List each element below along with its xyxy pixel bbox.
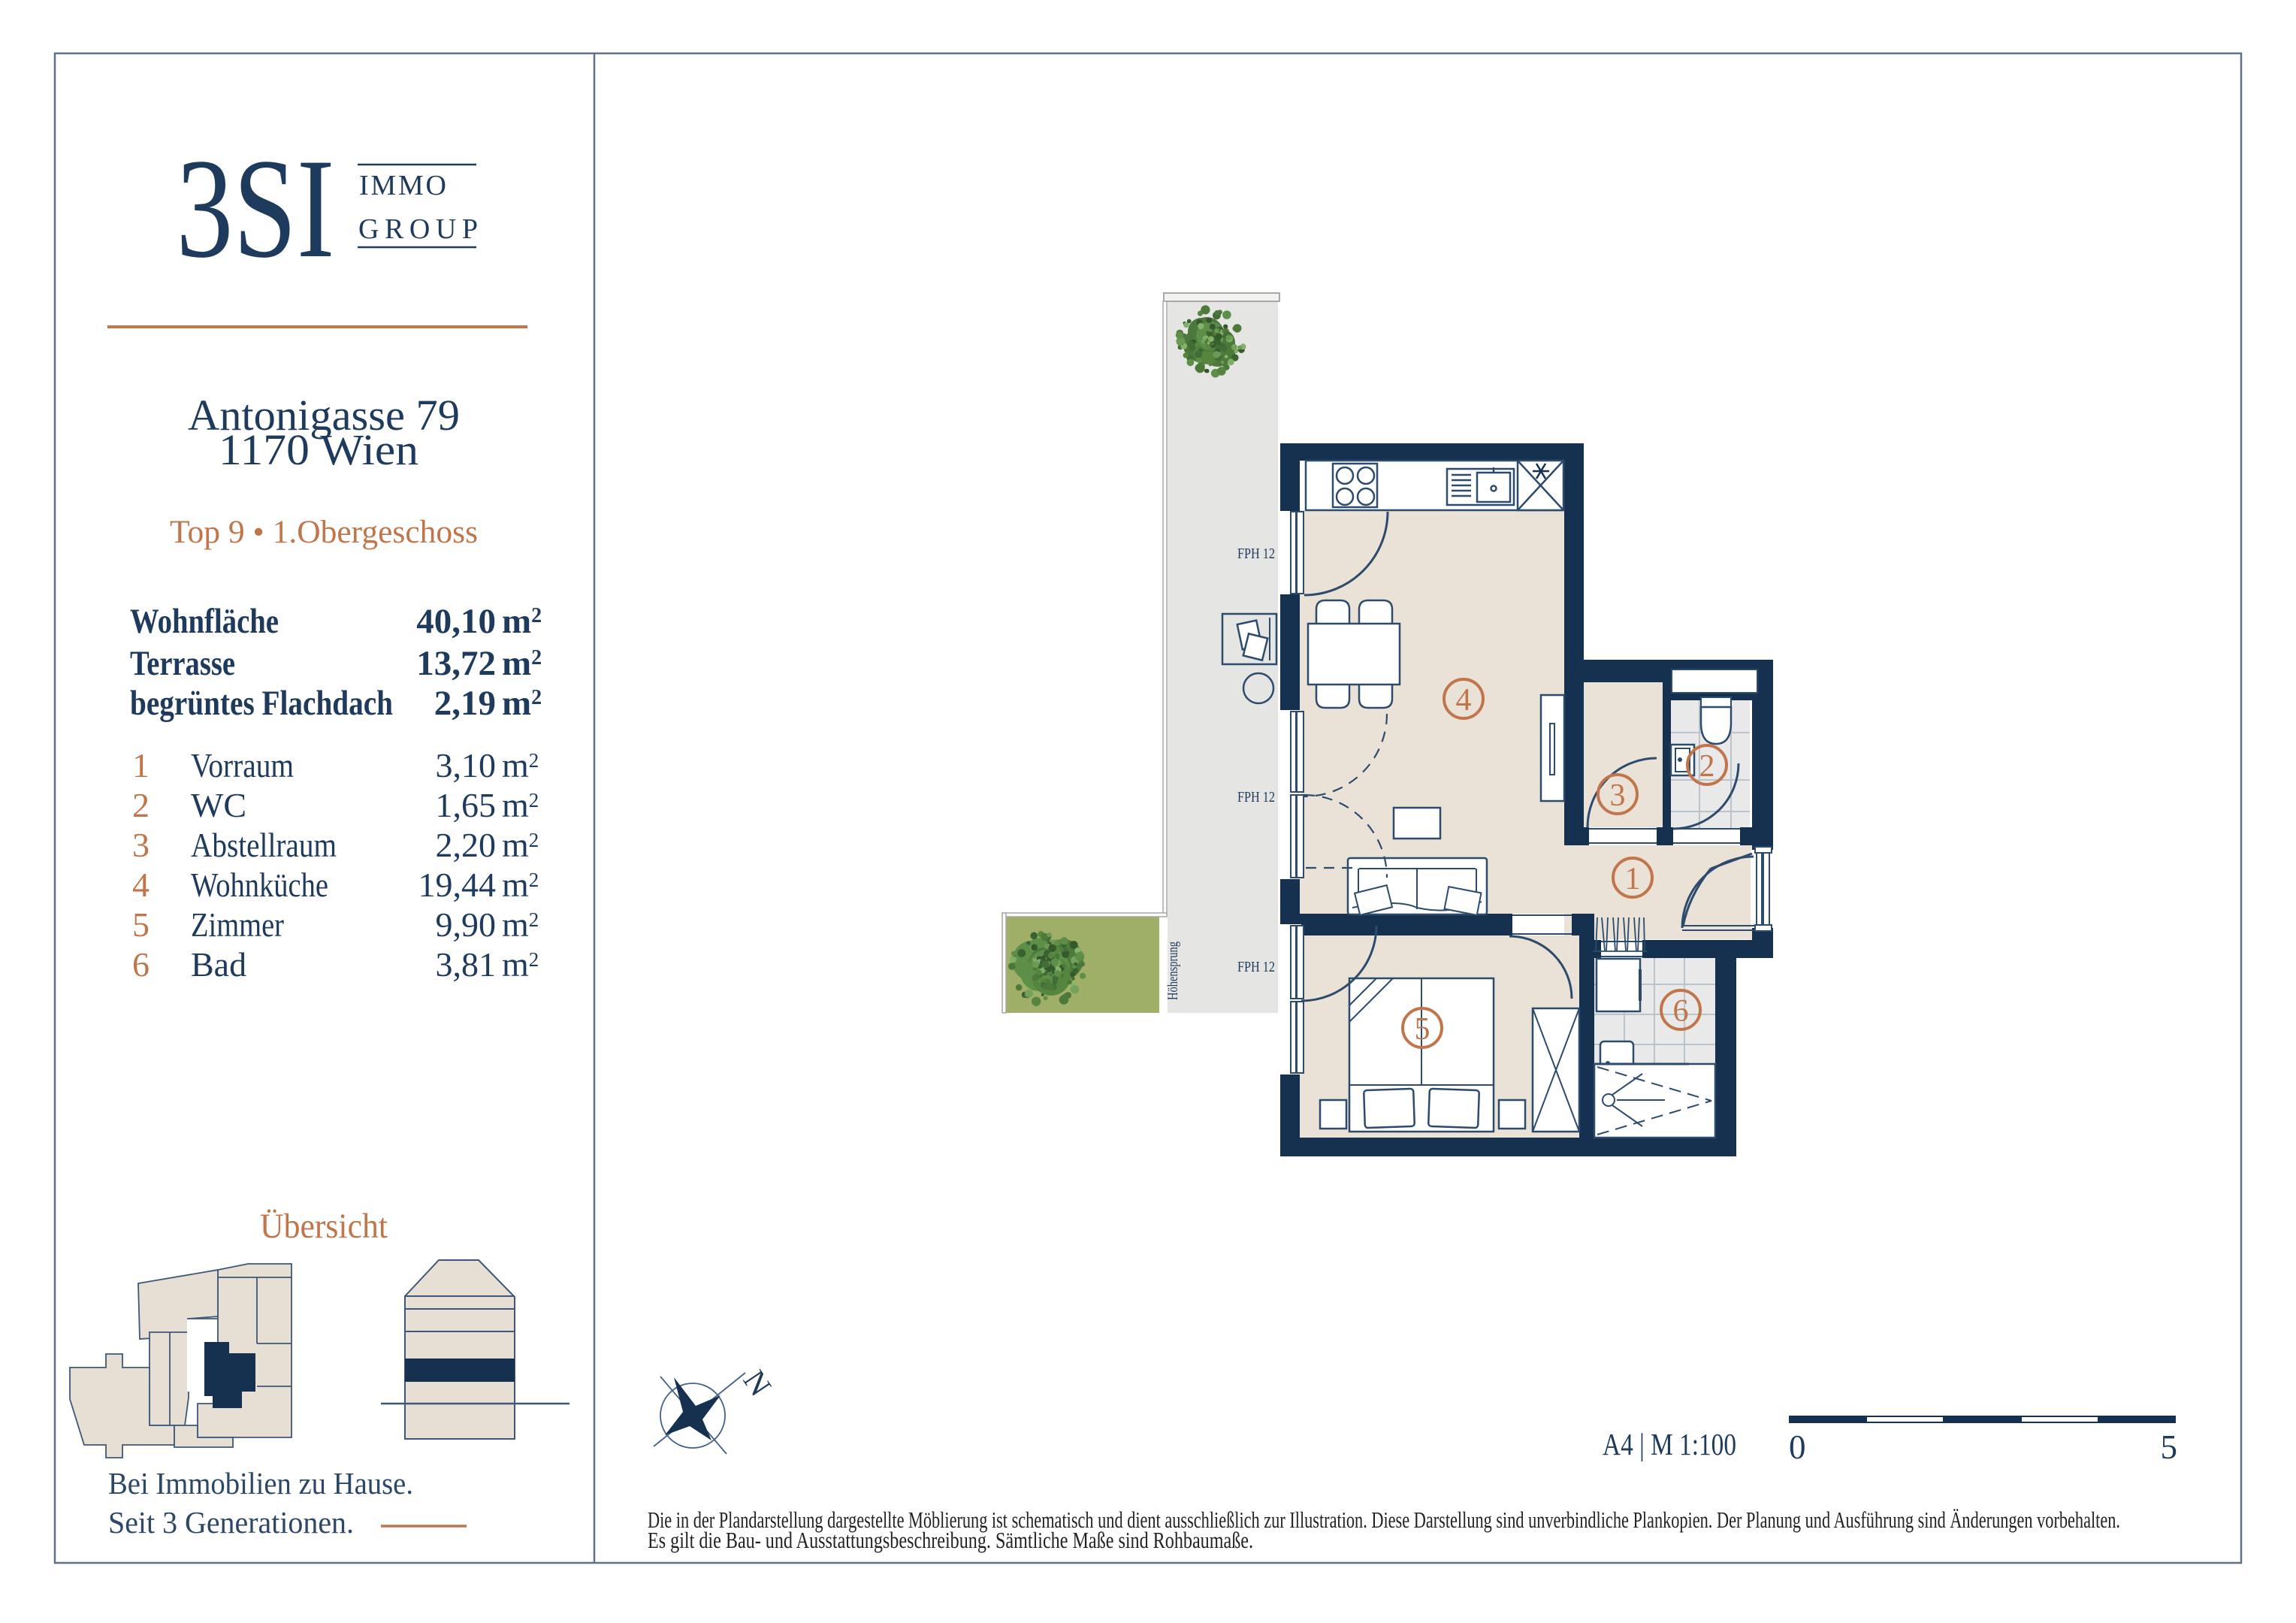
svg-text:13,72: 13,72 bbox=[416, 644, 496, 683]
svg-text:WC: WC bbox=[191, 786, 246, 824]
svg-text:1: 1 bbox=[1625, 862, 1641, 896]
svg-text:IMMO: IMMO bbox=[359, 170, 446, 201]
svg-text:5: 5 bbox=[1415, 1012, 1430, 1047]
svg-text:2: 2 bbox=[1699, 749, 1715, 784]
svg-text:Höhensprung: Höhensprung bbox=[1165, 941, 1181, 1000]
svg-text:3,10: 3,10 bbox=[436, 746, 497, 784]
svg-text:5: 5 bbox=[2161, 1428, 2178, 1466]
svg-text:9,90: 9,90 bbox=[436, 905, 497, 944]
svg-text:2,19: 2,19 bbox=[434, 684, 496, 723]
svg-text:FPH 12: FPH 12 bbox=[1237, 959, 1275, 975]
svg-text:Zimmer: Zimmer bbox=[191, 905, 284, 944]
svg-text:6: 6 bbox=[1673, 994, 1689, 1029]
svg-text:40,10: 40,10 bbox=[416, 602, 496, 641]
svg-text:Abstellraum: Abstellraum bbox=[191, 826, 337, 864]
svg-text:3,81: 3,81 bbox=[436, 945, 497, 984]
svg-text:4: 4 bbox=[132, 866, 150, 904]
svg-text:Es gilt die Bau- und Ausstattu: Es gilt die Bau- und Ausstattungsbeschre… bbox=[648, 1527, 1253, 1553]
svg-text:5: 5 bbox=[132, 905, 150, 944]
svg-text:Wohnfläche: Wohnfläche bbox=[130, 602, 279, 641]
svg-text:2: 2 bbox=[132, 786, 150, 824]
svg-text:4: 4 bbox=[1456, 683, 1472, 718]
svg-text:6: 6 bbox=[132, 945, 150, 984]
svg-text:Bei Immobilien zu Hause.: Bei Immobilien zu Hause. bbox=[108, 1466, 413, 1501]
svg-text:Vorraum: Vorraum bbox=[191, 746, 294, 784]
svg-text:Terrasse: Terrasse bbox=[130, 644, 235, 683]
svg-text:3: 3 bbox=[132, 826, 150, 864]
svg-text:3: 3 bbox=[1610, 778, 1626, 813]
svg-text:Übersicht: Übersicht bbox=[260, 1207, 388, 1246]
svg-text:2,20: 2,20 bbox=[436, 826, 497, 864]
svg-text:3SI: 3SI bbox=[177, 130, 335, 288]
svg-text:1170 Wien: 1170 Wien bbox=[219, 425, 418, 474]
svg-text:begrüntes Flachdach: begrüntes Flachdach bbox=[130, 684, 393, 723]
svg-text:FPH 12: FPH 12 bbox=[1237, 789, 1275, 805]
svg-text:1,65: 1,65 bbox=[436, 786, 497, 824]
svg-text:Seit 3 Generationen.: Seit 3 Generationen. bbox=[108, 1505, 354, 1540]
svg-text:19,44: 19,44 bbox=[418, 866, 497, 904]
svg-text:Top 9 • 1.Obergeschoss: Top 9 • 1.Obergeschoss bbox=[170, 515, 478, 550]
svg-text:Wohnküche: Wohnküche bbox=[191, 866, 328, 904]
svg-text:0: 0 bbox=[1789, 1428, 1806, 1466]
svg-text:Bad: Bad bbox=[191, 945, 246, 984]
svg-text:FPH 12: FPH 12 bbox=[1237, 546, 1275, 562]
svg-text:A4 | M 1:100: A4 | M 1:100 bbox=[1603, 1427, 1736, 1461]
svg-text:1: 1 bbox=[132, 746, 150, 784]
